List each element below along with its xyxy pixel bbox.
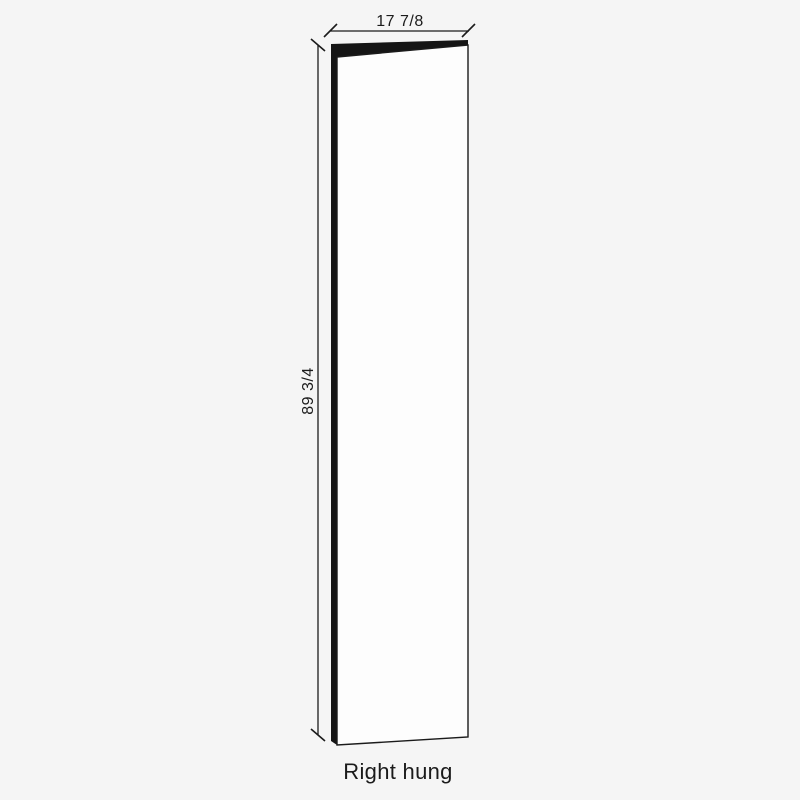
door-panel: [331, 40, 468, 745]
door-face: [337, 45, 468, 745]
height-dimension-label: 89 3/4: [300, 367, 317, 414]
width-dimension: 17 7/8: [324, 13, 475, 37]
door-dimension-diagram: 17 7/8 89 3/4 Right hung: [0, 0, 800, 800]
height-dimension: 89 3/4: [300, 39, 325, 741]
width-dimension-label: 17 7/8: [376, 13, 423, 30]
hinge-side-caption: Right hung: [343, 759, 452, 784]
